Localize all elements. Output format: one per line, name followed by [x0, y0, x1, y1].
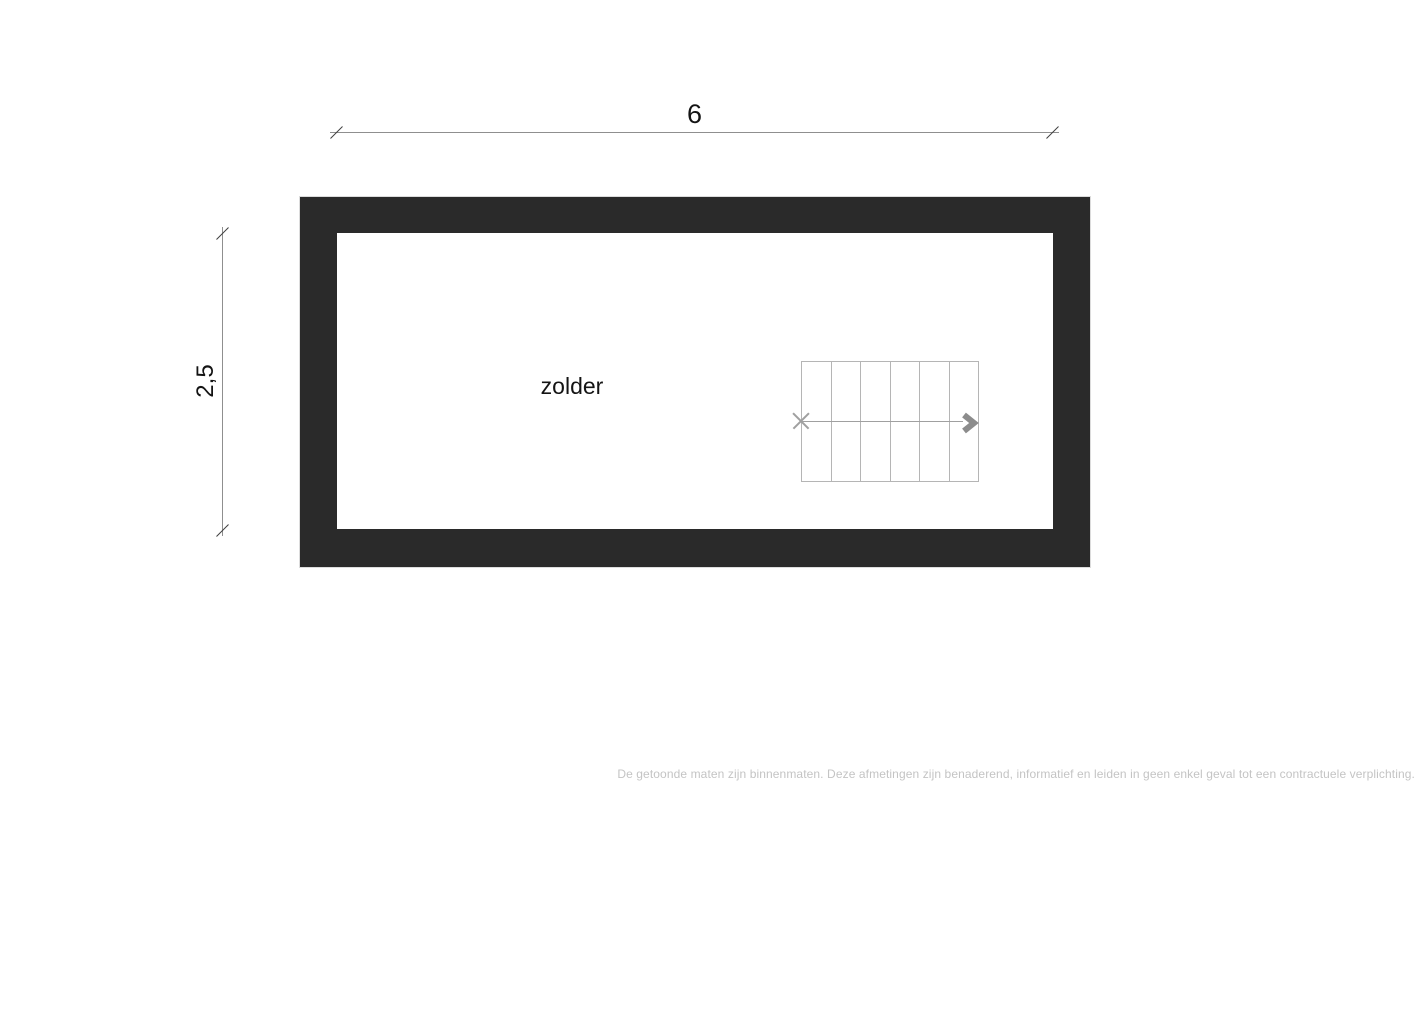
x-marker-icon [790, 410, 812, 432]
dimension-tick-icon [216, 524, 229, 537]
disclaimer-text: De getoonde maten zijn binnenmaten. Deze… [617, 767, 1415, 781]
dimension-tick-icon [216, 227, 229, 240]
width-dimension-line [330, 132, 1059, 133]
floorplan-canvas: 6 2,5 zolder De getoonde maten zijn binn… [0, 0, 1421, 1024]
height-dimension-label: 2,5 [193, 341, 219, 421]
height-dimension-line [222, 227, 223, 536]
chevron-right-icon [960, 412, 980, 432]
width-dimension-label: 6 [336, 100, 1053, 128]
stair-walk-line [801, 421, 963, 422]
room-label: zolder [457, 374, 687, 399]
